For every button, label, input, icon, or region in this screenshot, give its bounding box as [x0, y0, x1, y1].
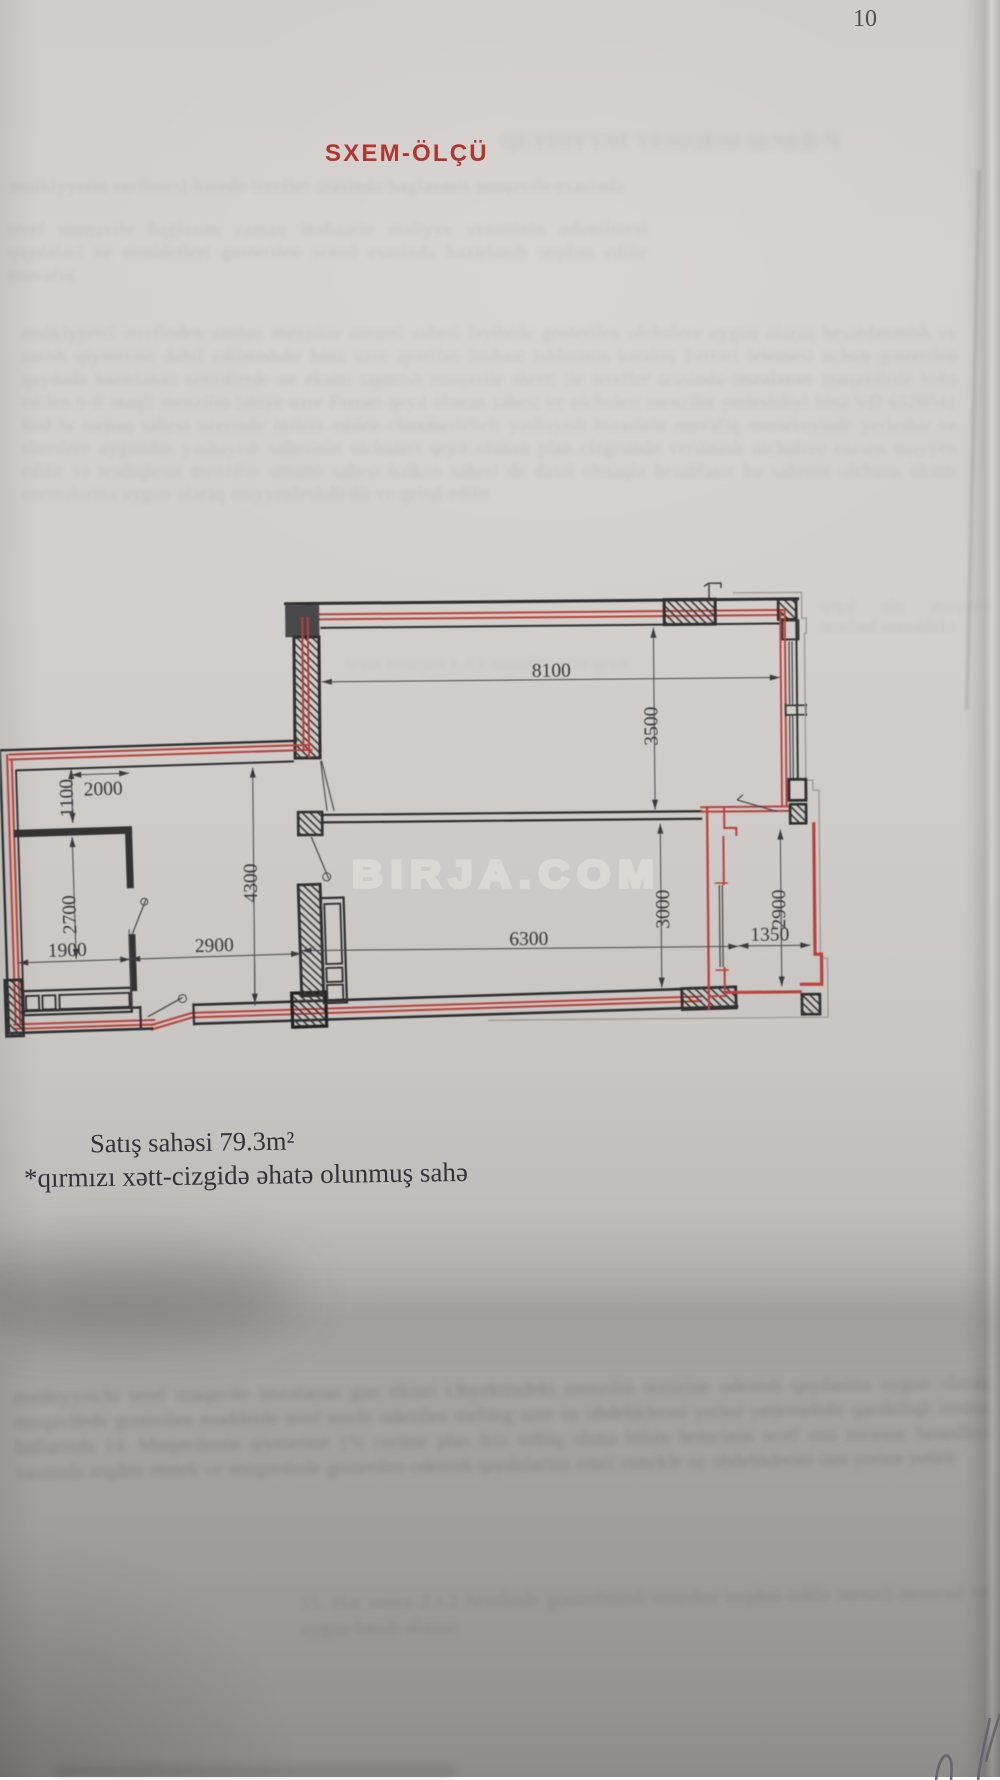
svg-text:3500: 3500: [641, 707, 662, 746]
svg-text:8100: 8100: [532, 660, 571, 681]
svg-text:1900: 1900: [48, 940, 88, 962]
svg-text:2900: 2900: [194, 935, 234, 957]
svg-text:6300: 6300: [509, 929, 548, 950]
svg-text:2000: 2000: [83, 778, 123, 800]
svg-text:2700: 2700: [59, 895, 81, 935]
svg-text:4300: 4300: [241, 863, 262, 902]
svg-text:2900: 2900: [769, 889, 790, 928]
svg-text:1350: 1350: [750, 924, 789, 945]
svg-text:1100: 1100: [56, 779, 78, 818]
